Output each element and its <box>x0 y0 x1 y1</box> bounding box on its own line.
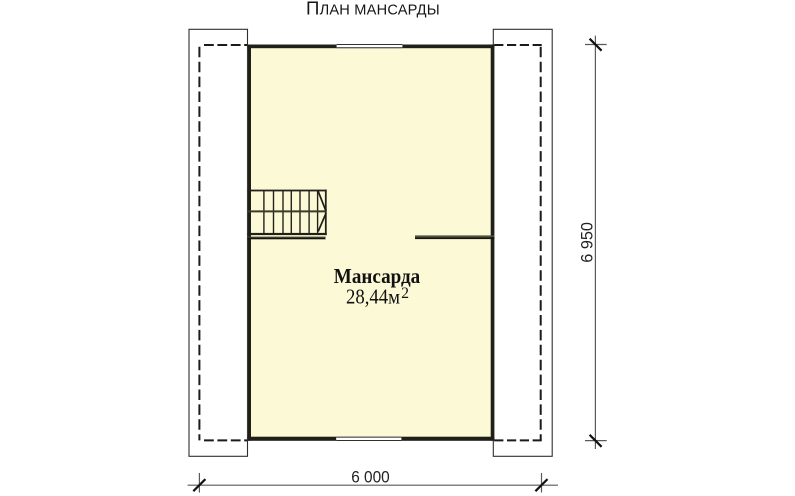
svg-text:ПЛАН МАНСАРДЫ: ПЛАН МАНСАРДЫ <box>306 0 440 19</box>
svg-text:2: 2 <box>401 285 409 302</box>
svg-text:6 000: 6 000 <box>351 467 390 486</box>
svg-text:6 950: 6 950 <box>578 222 597 263</box>
svg-text:28,44м: 28,44м <box>346 284 400 308</box>
